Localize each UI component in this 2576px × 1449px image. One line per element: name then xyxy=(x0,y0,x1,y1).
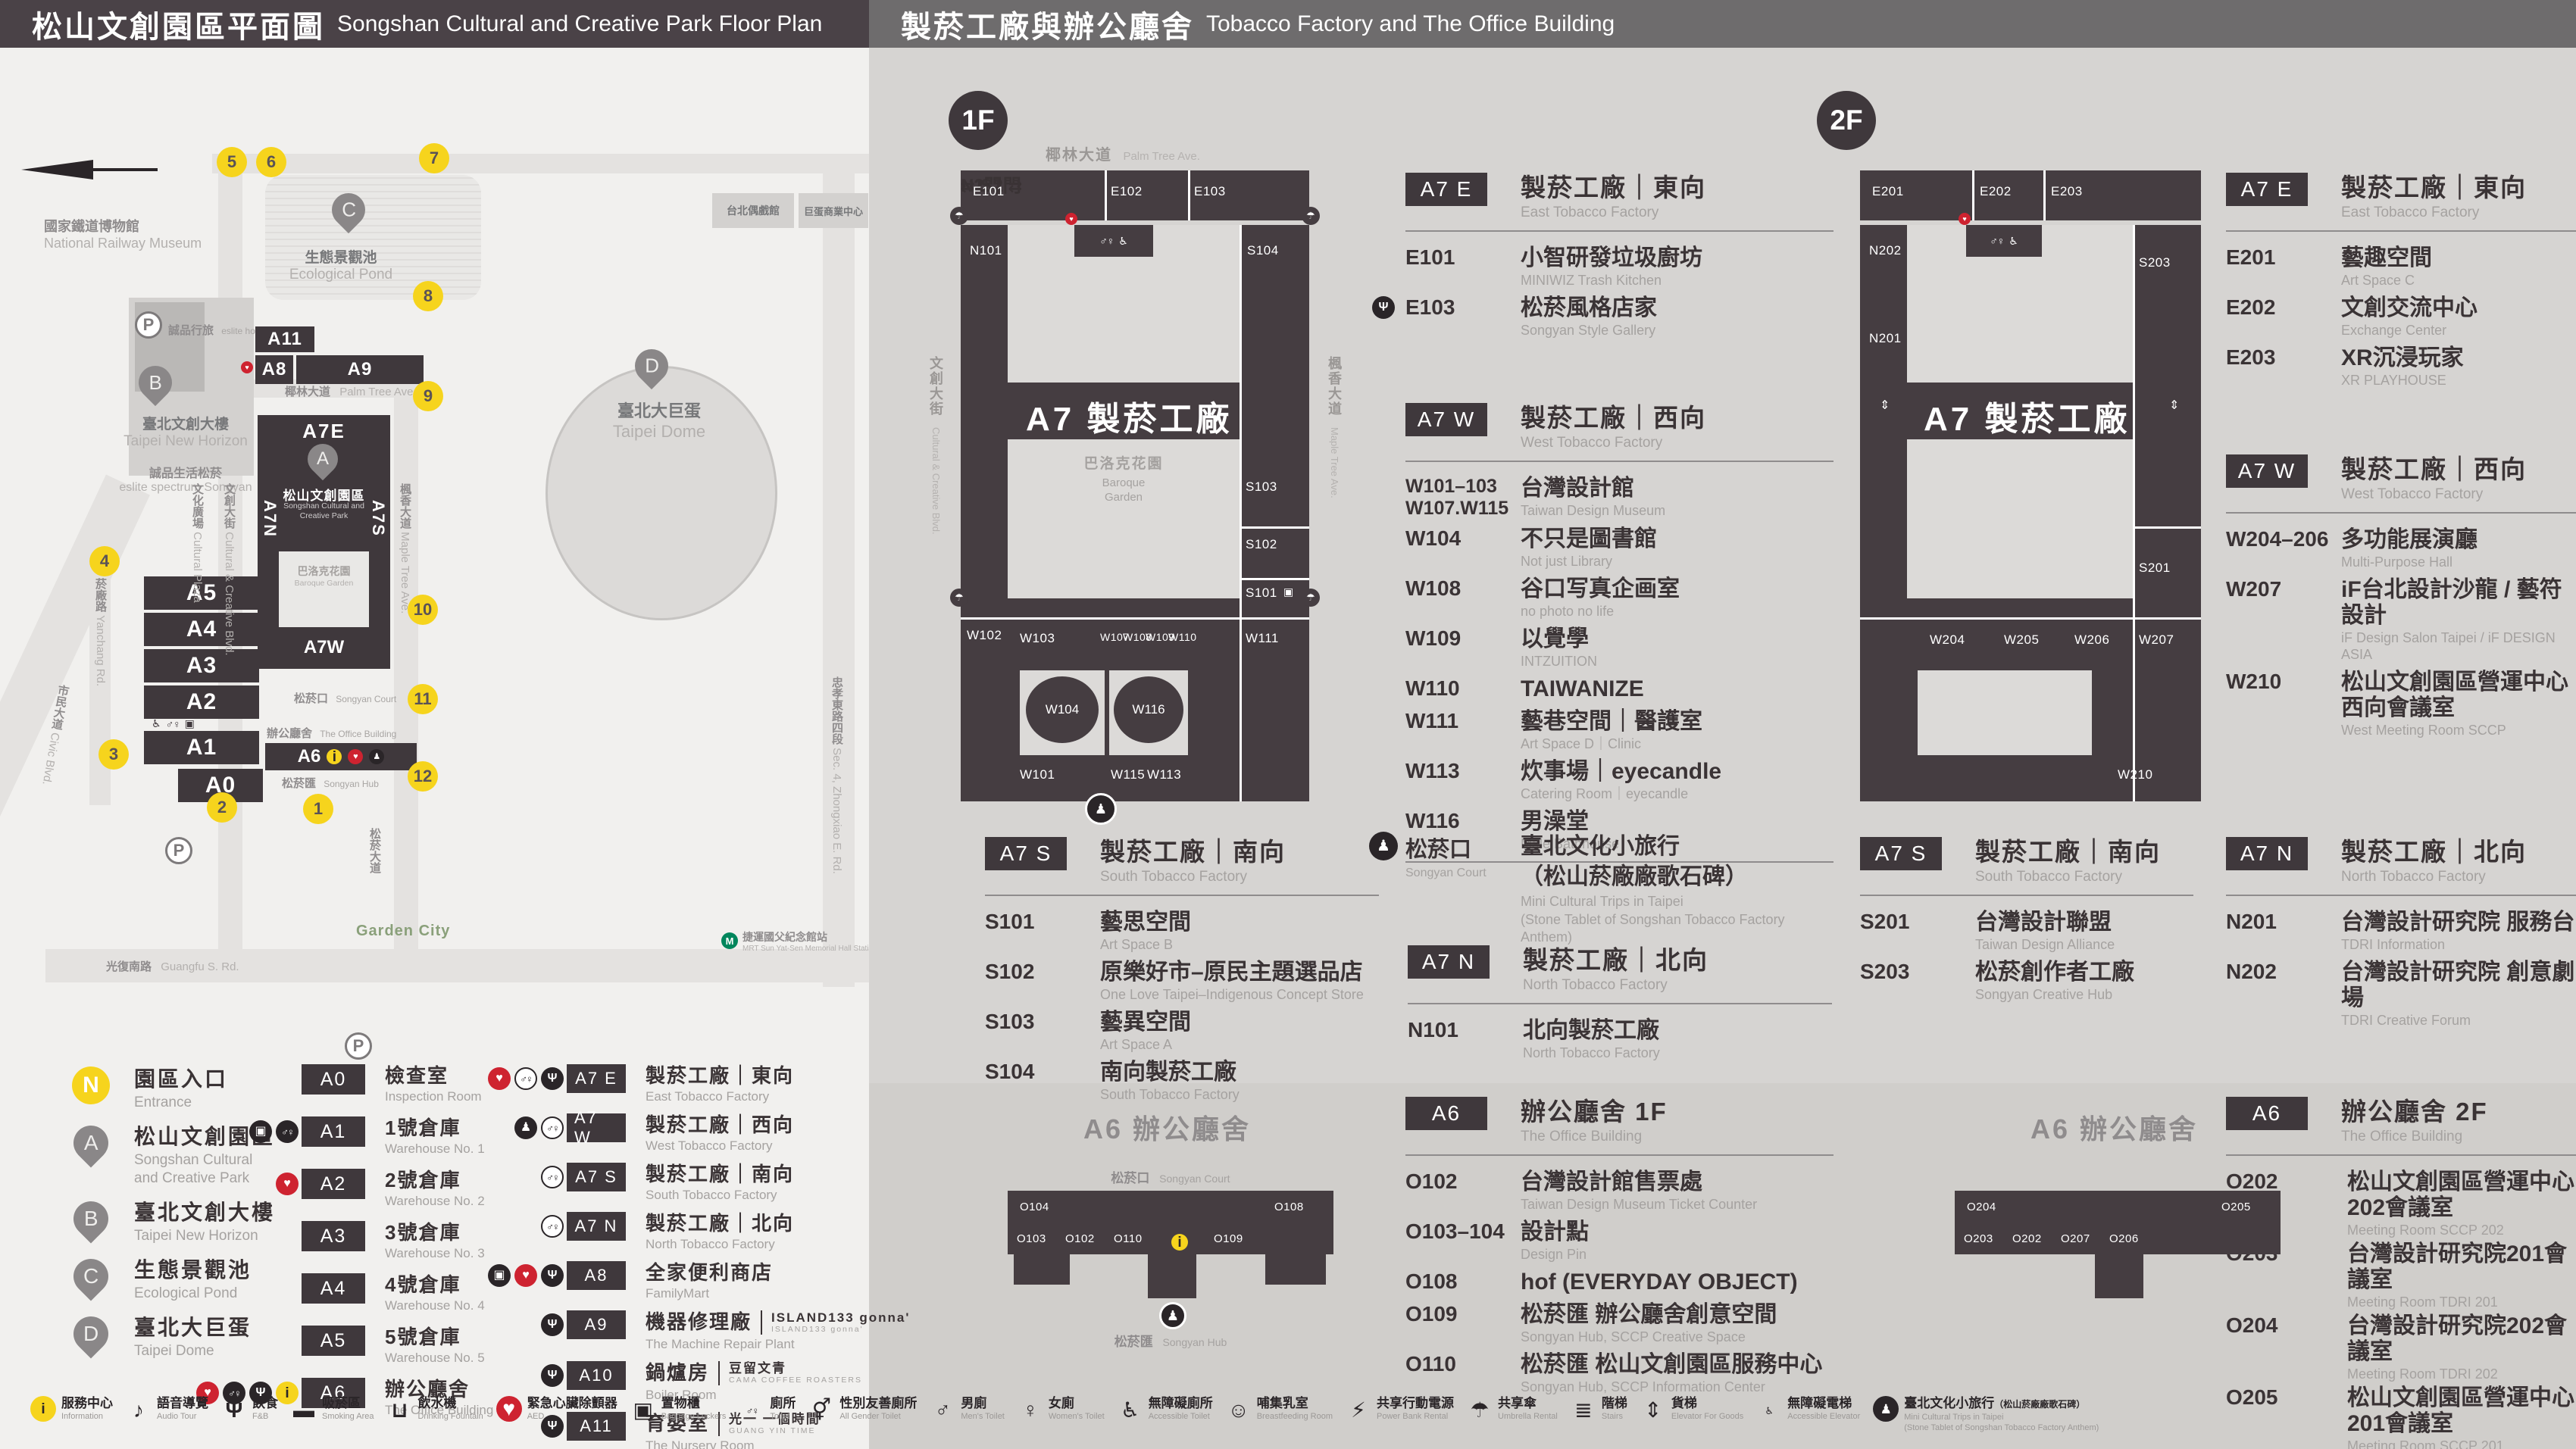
facility-en: AED xyxy=(527,1411,617,1422)
building-icons xyxy=(494,1064,564,1093)
road-top xyxy=(212,154,869,173)
building-tag: A7 E xyxy=(2226,173,2308,206)
aed-icon xyxy=(496,1396,522,1422)
room-label: S201 xyxy=(2139,561,2171,576)
room-name-en: Art Space C xyxy=(2341,272,2576,289)
baroque-garden-label: 巴洛克花園 Baroque Garden xyxy=(1052,452,1196,504)
room-label: W101 xyxy=(1020,767,1055,782)
room-label: W204 xyxy=(1930,632,1965,648)
section-header: A7 E製菸工廠｜東向East Tobacco Factory xyxy=(1405,173,1834,221)
block-a8: A8 xyxy=(255,355,293,384)
a7-building: A7E A7N A7S A 松山文創園區 Songshan Cultural a… xyxy=(258,415,390,669)
baroque-en: Baroque Garden xyxy=(258,579,390,588)
entrance-marker-icon: N xyxy=(72,1066,110,1104)
room-code: E101 xyxy=(1405,245,1521,289)
food-icon xyxy=(541,1264,564,1287)
section-title-en: East Tobacco Factory xyxy=(1521,205,1706,221)
facility-zh: 服務中心 xyxy=(61,1396,113,1411)
left-title-zh: 松山文創園區平面圖 xyxy=(32,2,325,46)
accessible-icon xyxy=(152,717,161,730)
section-title-en: East Tobacco Factory xyxy=(2341,205,2527,221)
building-zh: 2號倉庫 xyxy=(385,1169,485,1191)
facility-en: Information xyxy=(61,1411,113,1422)
room-name-zh: 台灣設計聯盟 xyxy=(1975,910,2193,935)
info-icon xyxy=(30,1396,56,1422)
facility-zh: 女廁 xyxy=(1049,1396,1105,1411)
block-a3: A3 xyxy=(144,649,259,682)
room-divider xyxy=(1241,526,1309,529)
facility-zh: 男廁 xyxy=(961,1396,1005,1411)
building-names: 檢查室Inspection Room xyxy=(385,1064,482,1104)
list-row: E103松菸風格店家Songyan Style Gallery xyxy=(1405,295,1834,339)
building-en: East Tobacco Factory xyxy=(646,1088,794,1104)
women-icon xyxy=(1018,1396,1043,1425)
room-names: 藝思空間Art Space B xyxy=(1100,910,1379,953)
section-rows: N101北向製菸工廠North Tobacco Factory xyxy=(1408,1018,1832,1061)
brand-box: ISLAND133 gonna'ISLAND133 gonna' xyxy=(761,1310,910,1335)
section-title-zh: 製菸工廠｜南向 xyxy=(1975,837,2161,867)
room-divider xyxy=(1972,170,1974,220)
section-header: A7 N製菸工廠｜北向North Tobacco Factory xyxy=(1408,945,1832,994)
section-divider xyxy=(985,895,1379,896)
room-names: 台灣設計研究院 創意劇場TDRI Creative Forum xyxy=(2341,960,2576,1029)
puppetry-label: 台北偶戲館 xyxy=(727,203,780,218)
list-row: E101小智研發垃圾廚坊MINIWIZ Trash Kitchen xyxy=(1405,245,1834,289)
room-code: W113 xyxy=(1405,759,1521,802)
entrance-number: 9 xyxy=(413,381,443,411)
a6-floorplan-1f: 松菸口 Songyan Court 松菸匯 Songyan Hub O104O1… xyxy=(1008,1170,1333,1310)
creative-en: Cultural & Creative Blvd. xyxy=(223,532,236,655)
building-names: 2號倉庫Warehouse No. 2 xyxy=(385,1169,485,1209)
map-office-label: 辦公廳舍 The Office Building xyxy=(267,725,396,741)
section-header: A6辦公廳舍 2FThe Office Building xyxy=(2226,1097,2576,1145)
facility-labels: 女廁Women's Toilet xyxy=(1049,1396,1105,1422)
facility-item: 臺北文化小旅行（松山菸廠廠歌石碑）Mini Cultural Trips in … xyxy=(1873,1396,2099,1433)
room-code: W110 xyxy=(1405,676,1521,702)
room-code: N101 xyxy=(1408,1018,1523,1061)
room-name-en: Meeting Room TDRI 201 xyxy=(2347,1294,2576,1310)
section-titles: 製菸工廠｜西向West Tobacco Factory xyxy=(1521,403,1706,451)
building-names: 1號倉庫Warehouse No. 1 xyxy=(385,1116,485,1157)
toilet-o-icon xyxy=(541,1166,564,1188)
facility-zh: 吸菸區 xyxy=(322,1396,374,1411)
room-names: 藝趣空間Art Space C xyxy=(2341,245,2576,289)
a6-hub-zh: 松菸匯 xyxy=(1114,1335,1153,1349)
section-title-en: North Tobacco Factory xyxy=(2341,869,2527,885)
building-tag: A8 xyxy=(567,1261,626,1290)
section-2f-south: A7 S製菸工廠｜南向South Tobacco FactoryS201台灣設計… xyxy=(1860,837,2193,1010)
room-name-zh: XR沉浸玩家 xyxy=(2341,345,2576,371)
room-name-en: Taiwan Design Museum Ticket Counter xyxy=(1521,1196,1834,1213)
aed-icon xyxy=(514,1264,537,1287)
legend-warehouses: A0檢查室Inspection RoomA11號倉庫Warehouse No. … xyxy=(217,1064,493,1418)
room-name-en: Songyan Creative Hub xyxy=(1975,986,2193,1003)
building-tag: A7 N xyxy=(2226,837,2308,870)
entrance-number: 2 xyxy=(207,792,237,823)
zhongxiao-en: Sec. 4, Zhongxiao E. Rd. xyxy=(830,748,843,874)
building-icons xyxy=(217,1169,299,1199)
brand-sub: ISLAND133 gonna' xyxy=(771,1325,910,1335)
room-name-en: INTZUITION xyxy=(1521,653,1834,670)
room-name-zh: TAIWANIZE xyxy=(1521,676,1834,702)
room-name-zh: 南向製菸工廠 xyxy=(1100,1060,1379,1085)
yanchang-rd-label: 菸廠路 Yanchang Rd. xyxy=(92,578,108,686)
room-name-en: iF Design Salon Taipei / iF DESIGN ASIA xyxy=(2341,629,2576,663)
room-names: 藝巷空間｜醫護室Art Space D｜Clinic xyxy=(1521,709,1834,752)
umbrella-icon xyxy=(950,589,968,607)
court-left: 松菸口 Songyan Court xyxy=(1405,832,1521,946)
section-divider xyxy=(1860,895,2193,896)
building-names: 4號倉庫Warehouse No. 4 xyxy=(385,1273,485,1313)
facility-labels: 緊急心臟除顫器AED xyxy=(527,1396,617,1422)
creative-blvd-label: 文創大街 Cultural & Creative Blvd. xyxy=(221,483,237,656)
room-names: 多功能展演廳Multi-Purpose Hall xyxy=(2341,527,2576,570)
guangfu-rd-label: 光復南路 Guangfu S. Rd. xyxy=(106,958,239,974)
facility-zh: 廁所 xyxy=(770,1396,796,1411)
corridor-line xyxy=(961,617,1309,620)
section-header: A6辦公廳舍 1FThe Office Building xyxy=(1405,1097,1834,1145)
map-hub-en: Songyan Hub xyxy=(324,779,379,789)
list-row: W110TAIWANIZE xyxy=(1405,676,1834,702)
section-1f-west: A7 W製菸工廠｜西向West Tobacco FactoryW101–103W… xyxy=(1405,403,1834,870)
a6-wing-left xyxy=(1014,1254,1070,1285)
a7-center-label: A7 製菸工廠 xyxy=(1026,392,1232,440)
building-zh: 製菸工廠｜南向 xyxy=(646,1163,794,1185)
zhongxiao-zh: 忠孝東路四段 xyxy=(830,676,843,745)
a6-court-en: Songyan Court xyxy=(1159,1173,1230,1185)
room-name-zh: 台灣設計館售票處 xyxy=(1521,1170,1834,1195)
facility-labels: 臺北文化小旅行（松山菸廠廠歌石碑）Mini Cultural Trips in … xyxy=(1904,1396,2099,1433)
facility-item: 無障礙電梯Accessible Elevator xyxy=(1756,1396,1860,1425)
room-name-en: Art Space B xyxy=(1100,936,1379,953)
building-names: 製菸工廠｜東向East Tobacco Factory xyxy=(646,1064,794,1104)
umbrella-icon xyxy=(950,207,968,225)
north-arrow-tail xyxy=(93,168,158,171)
facility-item: 無障礙廁所Accessible Toilet xyxy=(1118,1396,1213,1425)
room-label: S203 xyxy=(2139,255,2171,270)
room-name-en: Songyan Style Gallery xyxy=(1521,322,1834,339)
section-rows: W101–103W107.W115台灣設計館Taiwan Design Muse… xyxy=(1405,476,1834,863)
building-tag: A7 E xyxy=(567,1064,626,1093)
toilet-icon xyxy=(276,1120,299,1143)
section-rows: E201藝趣空間Art Space CE202文創交流中心Exchange Ce… xyxy=(2226,245,2576,389)
building-icons xyxy=(217,1221,299,1251)
left-header: 松山文創園區平面圖 Songshan Cultural and Creative… xyxy=(0,0,869,48)
room-code: O109 xyxy=(1405,1302,1521,1345)
list-row: S203松菸創作者工廠Songyan Creative Hub xyxy=(1860,960,2193,1003)
room-names: 松菸匯 松山文創園區服務中心Songyan Hub, SCCP Informat… xyxy=(1521,1352,1834,1395)
dome-label: 臺北大巨蛋 Taipei Dome xyxy=(599,398,720,442)
facility-en: Women's Toilet xyxy=(1049,1411,1105,1422)
legend-building-row: A7 E製菸工廠｜東向East Tobacco Factory xyxy=(494,1064,910,1104)
songyan-court-icon xyxy=(1159,1302,1186,1329)
brand-box: 豆留文青CAMA COFFEE ROASTERS xyxy=(718,1361,862,1385)
room-name-en: Design Pin xyxy=(1521,1246,1834,1263)
room-name-zh: 男澡堂 xyxy=(1521,809,1834,835)
room-names: 台灣設計館Taiwan Design Museum xyxy=(1521,476,1834,520)
room-code: N201 xyxy=(2226,910,2341,953)
facility-item: 共享傘Umbrella Rental xyxy=(1467,1396,1558,1425)
facility-item: 階梯Stairs xyxy=(1571,1396,1627,1425)
songyan-court-icon xyxy=(1369,832,1398,860)
section-1f-north: A7 N製菸工廠｜北向North Tobacco FactoryN101北向製菸… xyxy=(1408,945,1832,1068)
songyan-blvd-zh: 松菸大道 xyxy=(368,828,381,873)
room-name-en: Songyan Hub, SCCP Information Center xyxy=(1521,1379,1834,1395)
building-en: The Nursery Room xyxy=(646,1438,821,1449)
list-row: W113炊事場｜eyecandleCatering Room｜eyecandle xyxy=(1405,759,1834,802)
section-title-zh: 製菸工廠｜西向 xyxy=(1521,403,1706,433)
legend-building-row: A55號倉庫Warehouse No. 5 xyxy=(217,1326,493,1366)
room-names: 松山文創園區營運中心202會議室Meeting Room SCCP 202 xyxy=(2347,1170,2576,1238)
building-tag: A7 S xyxy=(1860,837,1942,870)
corridor-line xyxy=(1860,617,2201,620)
map-court-en: Songyan Court xyxy=(336,694,396,704)
block-a1: A1 xyxy=(144,731,259,764)
toilet-icon xyxy=(1099,235,1114,247)
room-label: E102 xyxy=(1111,184,1143,199)
section-header: A7 S製菸工廠｜南向South Tobacco Factory xyxy=(1860,837,2193,885)
room-label: W110 xyxy=(1168,631,1197,643)
map-hub-label: 松菸匯 Songyan Hub xyxy=(282,775,379,791)
map-court-zh: 松菸口 xyxy=(294,692,328,705)
room-names: 不只是圖書館Not just Library xyxy=(1521,526,1834,570)
section-title-zh: 辦公廳舍 2F xyxy=(2341,1097,2488,1127)
room-label: O102 xyxy=(1065,1232,1095,1245)
entrance-number: 1 xyxy=(303,794,333,824)
room-name-en: Art Space A xyxy=(1100,1036,1379,1053)
room-label: O110 xyxy=(1114,1232,1143,1245)
a6-wing-right xyxy=(1265,1254,1326,1285)
facility-en2: (Stone Tablet of Songshan Tobacco Factor… xyxy=(1904,1422,2099,1433)
room-code: W210 xyxy=(2226,670,2341,739)
courtyard-south xyxy=(1907,439,2133,598)
eslite-hotel-label: 誠品行旅 eslite hotel xyxy=(168,322,265,338)
room-oval-w116: W116 xyxy=(1114,676,1183,743)
facility-labels: 飲水機Drinking Fountain xyxy=(417,1396,483,1422)
toilet-icon xyxy=(1990,235,2004,247)
dome-mall-label: 巨蛋商業中心 xyxy=(804,204,863,218)
creative-blvd-plan-label: 文創大街 Cultural & Creative Blvd. xyxy=(926,356,946,535)
plan-maple-en: Maple Tree Ave. xyxy=(1329,427,1340,498)
toilet-o-icon xyxy=(541,1215,564,1238)
section-rows: S201台灣設計聯盟Taiwan Design AllianceS203松菸創作… xyxy=(1860,910,2193,1003)
map-a7w-label: A7W xyxy=(258,637,390,658)
room-code: E202 xyxy=(2226,295,2341,339)
baroque-plan-en: Baroque Garden xyxy=(1052,476,1196,504)
plan-creative-zh: 文創大街 xyxy=(928,356,943,417)
room-name-zh: 台灣設計研究院201會議室 xyxy=(2347,1241,2576,1293)
yanchang-zh: 菸廠路 xyxy=(94,578,107,612)
building-tag: A1 xyxy=(302,1116,365,1147)
room-code: S103 xyxy=(985,1010,1100,1053)
wing-divider xyxy=(2133,225,2135,801)
map-court-label: 松菸口 Songyan Court xyxy=(294,690,396,706)
list-row: W204–206多功能展演廳Multi-Purpose Hall xyxy=(2226,527,2576,570)
room-name-zh: 松山文創園區營運中心 xyxy=(2341,670,2576,695)
section-divider xyxy=(2226,512,2576,514)
room-names: 藝異空間Art Space A xyxy=(1100,1010,1379,1053)
room-names: 松山文創園區營運中心201會議室Meeting Room SCCP 201 xyxy=(2347,1385,2576,1449)
guangfu-zh: 光復南路 xyxy=(106,960,152,973)
building-tag: A7 N xyxy=(1408,945,1490,979)
room-code: S104 xyxy=(985,1060,1100,1103)
section-header: A7 E製菸工廠｜東向East Tobacco Factory xyxy=(2226,173,2576,221)
section-divider xyxy=(2226,230,2576,232)
aed-icon xyxy=(1959,213,1971,225)
section-1f-a6: A6辦公廳舍 1FThe Office BuildingO102台灣設計館售票處… xyxy=(1405,1097,1834,1402)
accessible-toilet-icon xyxy=(2009,235,2018,248)
legend-factory: A7 E製菸工廠｜東向East Tobacco FactoryA7 W製菸工廠｜… xyxy=(494,1064,910,1449)
facility-labels: 吸菸區Smoking Area xyxy=(322,1396,374,1422)
facility-zh: 階梯 xyxy=(1602,1396,1627,1411)
section-rows: E101小智研發垃圾廚坊MINIWIZ Trash KitchenE103松菸風… xyxy=(1405,245,1834,339)
palm-ave-plan-label: 椰林大道 Palm Tree Ave. xyxy=(1046,142,1200,164)
section-titles: 製菸工廠｜南向South Tobacco Factory xyxy=(1975,837,2161,885)
room-name-en: Meeting Room SCCP 202 xyxy=(2347,1222,2576,1238)
room-label: W102 xyxy=(967,628,1002,643)
room-names: 炊事場｜eyecandleCatering Room｜eyecandle xyxy=(1521,759,1834,802)
place-marker: D xyxy=(72,1315,110,1360)
puppetry-block: 台北偶戲館 xyxy=(712,193,794,228)
building-names: 5號倉庫Warehouse No. 5 xyxy=(385,1326,485,1366)
building-icons xyxy=(494,1163,564,1191)
room-names: iF台北設計沙龍 / 藝符設計iF Design Salon Taipei / … xyxy=(2341,577,2576,663)
pin-a: A xyxy=(302,438,345,481)
room-name-zh: 台灣設計研究院202會議室 xyxy=(2347,1313,2576,1365)
room-label: O104 xyxy=(1020,1201,1049,1213)
baroque-zh: 巴洛克花園 xyxy=(258,564,390,579)
floor-2f-badge: 2F xyxy=(1817,91,1876,150)
room-code: S201 xyxy=(1860,910,1975,953)
building-zh: 4號倉庫 xyxy=(385,1273,485,1296)
toilet-icon xyxy=(166,717,180,730)
room-label: O205 xyxy=(2221,1201,2251,1213)
a6-plan-title-2f: A6 辦公廳舍 xyxy=(2030,1107,2198,1147)
pin-icon: C xyxy=(66,1251,115,1301)
legend-building-row: A44號倉庫Warehouse No. 4 xyxy=(217,1273,493,1313)
toilet-icon xyxy=(739,1396,764,1425)
room-name-zh2: 西向會議室 xyxy=(2341,695,2576,721)
water-icon xyxy=(386,1396,412,1425)
building-en: Warehouse No. 5 xyxy=(385,1350,485,1366)
entrance-number: 10 xyxy=(408,595,438,625)
lift-icon xyxy=(1640,1396,1666,1425)
accessible-toilet-icon xyxy=(1118,235,1128,248)
place-en: Entrance xyxy=(134,1094,228,1112)
list-row: N101北向製菸工廠North Tobacco Factory xyxy=(1408,1018,1832,1061)
nursing-icon xyxy=(1226,1396,1252,1425)
umbrella-icon xyxy=(1302,207,1320,225)
facility-labels: 置物櫃Baggage Lockers xyxy=(661,1396,727,1422)
room-code: O102 xyxy=(1405,1170,1521,1213)
facility-labels: 無障礙電梯Accessible Elevator xyxy=(1787,1396,1860,1422)
room-name-zh: iF台北設計沙龍 / 藝符設計 xyxy=(2341,577,2576,629)
room-label: S104 xyxy=(1247,243,1279,258)
building-names: 製菸工廠｜南向South Tobacco Factory xyxy=(646,1163,794,1203)
building-tag: A4 xyxy=(302,1273,365,1304)
facility-en: Baggage Lockers xyxy=(661,1411,727,1422)
room-code: W101–103W107.W115 xyxy=(1405,476,1521,520)
court-en: Songyan Court xyxy=(1405,867,1521,880)
umbrella-icon xyxy=(1302,589,1320,607)
a6-wing-center xyxy=(1148,1254,1196,1298)
building-tag: A7 E xyxy=(1405,173,1487,206)
room-label: W115 xyxy=(1111,767,1145,782)
room-code: W104 xyxy=(1405,526,1521,570)
room-name-zh: 松山文創園區營運中心201會議室 xyxy=(2347,1385,2576,1437)
room-name-en: Exchange Center xyxy=(2341,322,2576,339)
legend-building-row: A7 N製菸工廠｜北向North Tobacco Factory xyxy=(494,1212,910,1252)
room-name-en: Art Space D｜Clinic xyxy=(1521,735,1834,752)
room-name-en: MINIWIZ Trash Kitchen xyxy=(1521,272,1834,289)
list-row: N201台灣設計研究院 服務台TDRI Information xyxy=(2226,910,2576,953)
baroque-plan-zh: 巴洛克花園 xyxy=(1052,452,1196,473)
a6-court-label: 松菸口 Songyan Court xyxy=(1008,1167,1333,1186)
room-label: O204 xyxy=(1967,1201,1996,1213)
stairs-icon xyxy=(1571,1396,1596,1425)
section-divider xyxy=(2226,1154,2576,1156)
section-2f-east: A7 E製菸工廠｜東向East Tobacco FactoryE201藝趣空間A… xyxy=(2226,173,2576,395)
building-zh: 1號倉庫 xyxy=(385,1116,485,1139)
room-code: W108 xyxy=(1405,576,1521,620)
facility-labels: 貨梯Elevator For Goods xyxy=(1671,1396,1743,1422)
section-titles: 製菸工廠｜東向East Tobacco Factory xyxy=(2341,173,2527,221)
umbrella-icon xyxy=(1467,1396,1493,1425)
list-row: S104南向製菸工廠South Tobacco Factory xyxy=(985,1060,1379,1103)
facility-labels: 共享行動電源Power Bank Rental xyxy=(1377,1396,1454,1422)
room-label: O109 xyxy=(1214,1232,1243,1245)
room-names: 台灣設計研究院202會議室Meeting Room TDRI 202 xyxy=(2347,1313,2576,1382)
list-row: W207iF台北設計沙龍 / 藝符設計iF Design Salon Taipe… xyxy=(2226,577,2576,663)
building-icons xyxy=(217,1326,299,1356)
section-divider xyxy=(1405,230,1834,232)
section-title-en: West Tobacco Factory xyxy=(2341,486,2527,503)
block-a9: A9 xyxy=(296,355,424,384)
entrance-number: 5 xyxy=(217,147,247,177)
elevator-icon xyxy=(1880,398,1890,413)
section-titles: 製菸工廠｜北向North Tobacco Factory xyxy=(1523,945,1708,994)
a6-hub-en: Songyan Hub xyxy=(1162,1336,1227,1348)
new-horizon-zh: 臺北文創大樓 xyxy=(142,417,229,433)
room-names: 台灣設計研究院201會議室Meeting Room TDRI 201 xyxy=(2347,1241,2576,1310)
building-zh: 製菸工廠｜東向 xyxy=(646,1064,794,1087)
room-label: E101 xyxy=(973,184,1005,199)
room-label: S101 xyxy=(1246,586,1277,601)
facility-en: All Gender Toilet xyxy=(839,1411,917,1422)
park-name-en1: Songshan Cultural and xyxy=(283,501,364,511)
railway-museum-zh: 國家鐵道博物館 xyxy=(44,219,139,234)
section-rows: W204–206多功能展演廳Multi-Purpose HallW207iF台北… xyxy=(2226,527,2576,739)
a6-plan-title-1f: A6 辦公廳舍 xyxy=(1083,1107,1251,1147)
room-names: 松菸風格店家Songyan Style Gallery xyxy=(1521,295,1834,339)
zhongxiao-rd-label: 忠孝東路四段 Sec. 4, Zhongxiao E. Rd. xyxy=(829,676,845,874)
songyan-court-block: 松菸口 Songyan Court 臺北文化小旅行 （松山菸廠廠歌石碑） Min… xyxy=(1405,832,1834,946)
pond-label: 生態景觀池 Ecological Pond xyxy=(280,246,402,283)
room-name-zh: 北向製菸工廠 xyxy=(1523,1018,1832,1044)
room-code: O205 xyxy=(2226,1385,2347,1449)
facility-labels: 性別友善廁所All Gender Toilet xyxy=(839,1396,917,1422)
room-label: W210 xyxy=(2118,767,2152,782)
facility-item: 服務中心Information xyxy=(30,1396,113,1422)
list-row: O103–104設計點Design Pin xyxy=(1405,1219,1834,1263)
facility-en: Elevator For Goods xyxy=(1671,1411,1743,1422)
baroque-garden-courtyard xyxy=(279,551,369,627)
toilet-o-icon xyxy=(541,1116,564,1139)
room-label: W113 xyxy=(1147,767,1181,782)
songyan-blvd-label: 松菸大道 xyxy=(367,828,383,873)
toilet-pocket xyxy=(1074,225,1153,257)
room-names: 原樂好市–原民主題選品店One Love Taipei–Indigenous C… xyxy=(1100,960,1379,1003)
